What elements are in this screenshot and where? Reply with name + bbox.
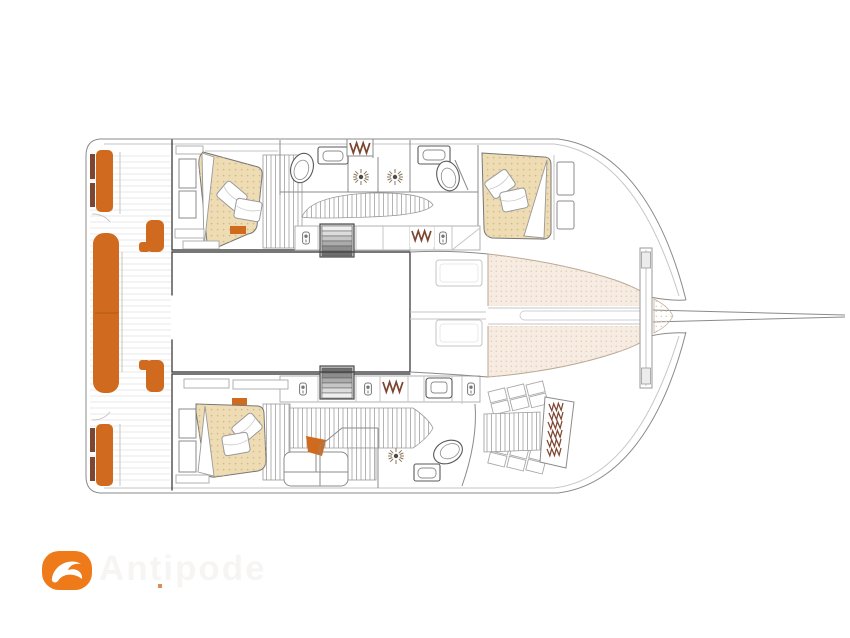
catamaran-deck-plan [0, 0, 850, 638]
hull-top-interior [172, 139, 574, 257]
transom-step-bottom-a [90, 428, 95, 452]
foredeck-edges [410, 251, 488, 377]
corridor-landing [302, 193, 433, 218]
helm-seat-top [139, 220, 164, 252]
catamaran-floor-plan-page: Antipode [0, 0, 850, 638]
transom-step-top-b [90, 183, 95, 207]
transom-step-bottom-b [90, 457, 95, 481]
shelf [233, 380, 288, 389]
transom-step-top-a [90, 154, 95, 179]
transom-seat-top [96, 150, 113, 212]
step-pad [232, 398, 247, 405]
deck-hatch-inner [440, 264, 478, 282]
shelf [184, 379, 229, 388]
shower-drain [388, 448, 404, 464]
deck-hatch-inner [440, 324, 478, 342]
wardrobe [179, 191, 196, 218]
saloon [172, 252, 410, 372]
wardrobe [179, 409, 196, 438]
forepeak-storage-bottom [484, 381, 574, 474]
bowsprit-lines [652, 310, 845, 322]
pillow [233, 198, 262, 222]
toilet [430, 436, 466, 469]
locker-handle [468, 383, 475, 395]
bathroom-wall [462, 404, 475, 486]
walkway-plank [520, 311, 646, 320]
watermark-dot [158, 584, 162, 588]
corridor-forepeak [484, 412, 540, 452]
wardrobe [179, 159, 196, 188]
closet [557, 201, 574, 229]
pillow [221, 432, 250, 456]
hull-bottom-interior [172, 366, 574, 490]
locker-handle [300, 383, 307, 395]
bench [183, 241, 219, 249]
transom-seat-bottom [96, 424, 113, 486]
companionway-steps-bottom [320, 366, 354, 399]
site-logo [42, 551, 92, 590]
foredeck-centerline [410, 312, 486, 319]
locker-handle [303, 232, 310, 244]
bridle-net [654, 299, 673, 333]
step-pad [230, 226, 246, 234]
foredeck [410, 251, 488, 377]
watermark-text: Antipode [99, 549, 267, 589]
fwd-cabin-top [482, 153, 574, 240]
aft-cabin-top [175, 146, 278, 249]
cockpit-coaming [120, 152, 122, 486]
sink [426, 378, 452, 398]
bow-trampoline [487, 248, 673, 388]
stern-cockpit [86, 139, 171, 493]
saloon-walls [172, 252, 410, 372]
locker-handle [440, 232, 447, 244]
shelf [176, 146, 203, 154]
wardrobe [179, 441, 196, 472]
shower-drain [387, 169, 403, 185]
bench [176, 475, 209, 483]
helm-seat-bottom [139, 360, 164, 392]
bench [175, 229, 204, 238]
shower-drain [353, 169, 369, 185]
forward-crossbeam [640, 248, 652, 388]
locker-handle [365, 383, 372, 395]
closet [557, 162, 574, 195]
